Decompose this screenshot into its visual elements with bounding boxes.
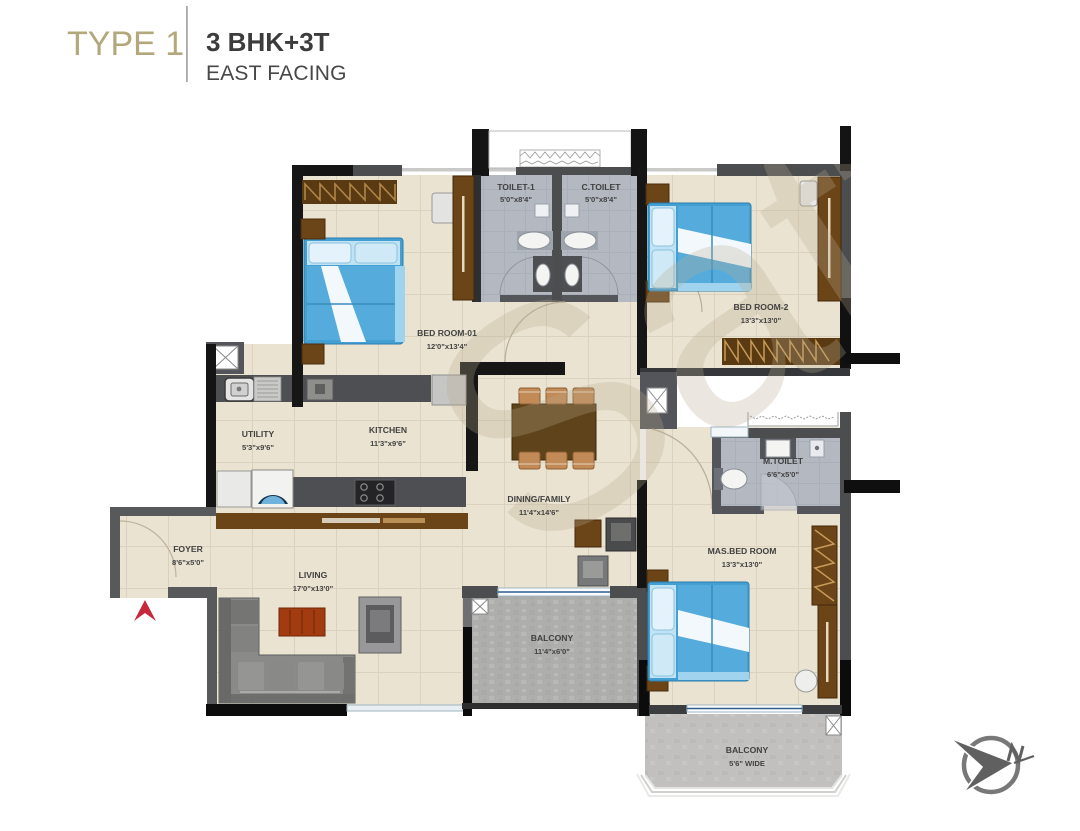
- svg-text:FOYER: FOYER: [173, 544, 203, 554]
- svg-text:C.TOILET: C.TOILET: [582, 182, 622, 192]
- svg-text:5'3"x9'6": 5'3"x9'6": [242, 443, 274, 452]
- svg-text:17'0"x13'0": 17'0"x13'0": [293, 584, 334, 593]
- svg-text:LIVING: LIVING: [299, 570, 328, 580]
- svg-text:11'4"x6'0": 11'4"x6'0": [534, 647, 570, 656]
- svg-text:BALCONY: BALCONY: [726, 745, 769, 755]
- svg-text:12'0"x13'4": 12'0"x13'4": [427, 342, 468, 351]
- svg-text:BED ROOM-01: BED ROOM-01: [417, 328, 477, 338]
- svg-text:KITCHEN: KITCHEN: [369, 425, 407, 435]
- svg-text:11'4"x14'6": 11'4"x14'6": [519, 508, 559, 517]
- svg-text:DINING/FAMILY: DINING/FAMILY: [507, 494, 570, 504]
- svg-text:M.TOILET: M.TOILET: [763, 456, 804, 466]
- svg-text:EAST FACING: EAST FACING: [206, 62, 347, 85]
- svg-text:13'3"x13'0": 13'3"x13'0": [741, 316, 782, 325]
- svg-text:MAS.BED ROOM: MAS.BED ROOM: [708, 546, 777, 556]
- svg-text:11'3"x9'6": 11'3"x9'6": [370, 439, 406, 448]
- svg-text:5'0"x8'4": 5'0"x8'4": [500, 195, 532, 204]
- svg-text:BALCONY: BALCONY: [531, 633, 574, 643]
- svg-text:3 BHK+3T: 3 BHK+3T: [206, 27, 330, 57]
- svg-text:TYPE 1: TYPE 1: [67, 25, 184, 63]
- svg-text:BED ROOM-2: BED ROOM-2: [734, 302, 789, 312]
- svg-text:TOILET-1: TOILET-1: [497, 182, 535, 192]
- svg-text:UTILITY: UTILITY: [242, 429, 275, 439]
- svg-text:8'6"x5'0": 8'6"x5'0": [172, 558, 204, 567]
- svg-text:5'0"x8'4": 5'0"x8'4": [585, 195, 617, 204]
- svg-text:13'3"x13'0": 13'3"x13'0": [722, 560, 763, 569]
- svg-text:5'6" WIDE: 5'6" WIDE: [729, 759, 765, 768]
- svg-text:6'6"x5'0": 6'6"x5'0": [767, 470, 799, 479]
